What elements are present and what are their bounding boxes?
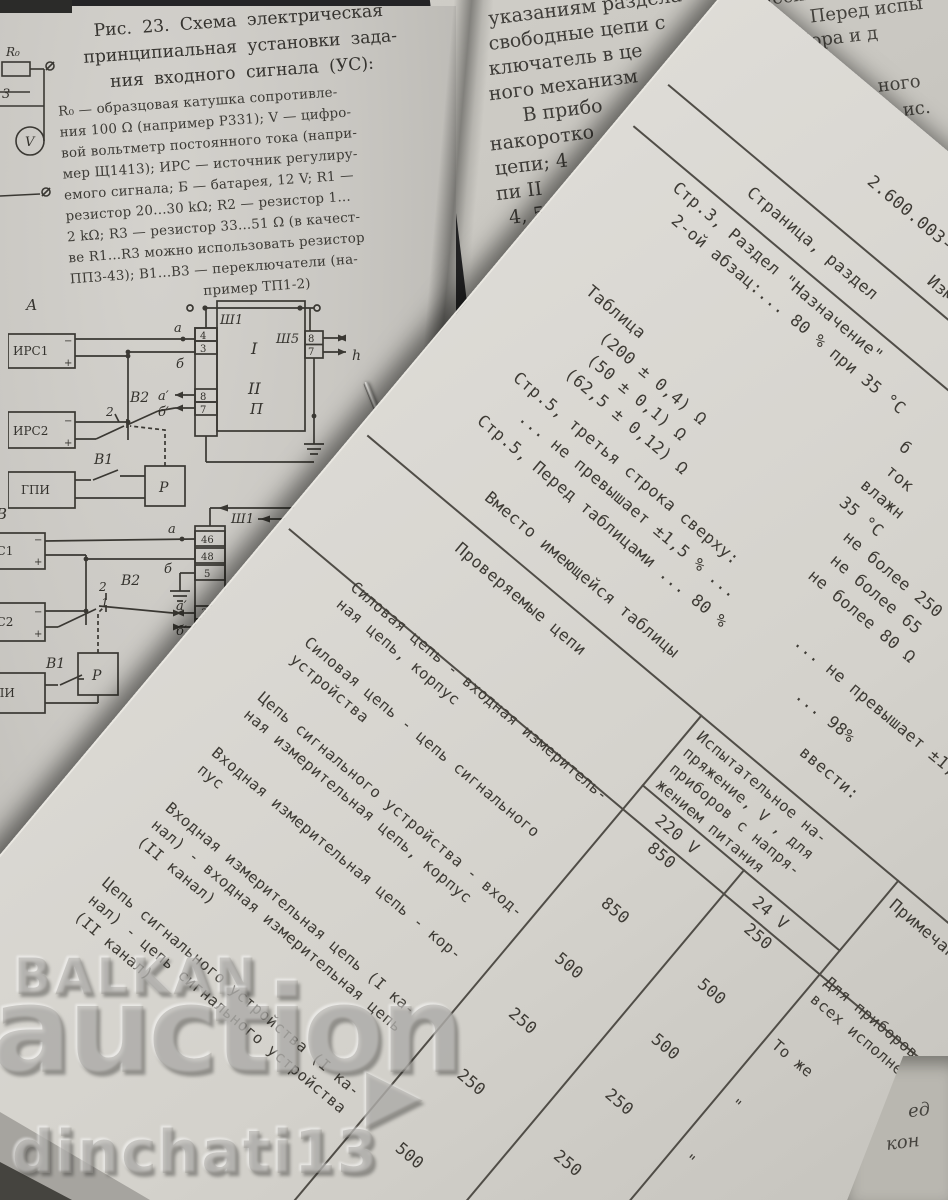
r0-label: R₀ <box>5 45 20 59</box>
gpi-block-label: ГПИ <box>21 483 50 497</box>
sh5-pin-7: 7 <box>308 347 314 358</box>
plus-mark: + <box>34 629 42 640</box>
minus-mark: − <box>64 416 72 427</box>
pin-48: 48 <box>201 552 214 563</box>
irs2-block-label: ИРС2 <box>13 424 48 438</box>
contact-1-label: 1 <box>101 596 109 610</box>
pin-4: 4 <box>200 331 206 342</box>
figure-caption: Рис. 23. Схема электрическая принципиаль… <box>52 0 443 312</box>
sh1-connector-label: Ш1 <box>219 313 243 328</box>
background-strip <box>0 0 72 13</box>
table-cell-24v: 500 <box>694 974 730 1008</box>
table-row-label: Силовая цепь - входная измеритель- <box>347 578 612 804</box>
plus-mark: + <box>64 438 72 449</box>
wire-a-label: a <box>168 522 176 537</box>
wire-a-label: a <box>174 321 182 336</box>
pin-46: 46 <box>201 535 214 546</box>
entry-line: ввести: <box>796 743 864 804</box>
section-2-label: II <box>247 379 261 398</box>
watermark-dinchati13: dinchati13 <box>12 1118 380 1188</box>
entry-line: 2-ой абзац:... 80 % при 35 °С <box>668 211 910 418</box>
minus-mark: − <box>34 535 42 546</box>
table-cell-220v: 850 <box>597 893 633 927</box>
pin-5: 5 <box>204 569 210 580</box>
table-cell-24v: 250 <box>550 1146 586 1180</box>
circuit-a-label: А <box>25 296 37 314</box>
irs1-block-label: ИРС1 <box>13 344 48 358</box>
wire-a1-label: a′ <box>176 599 187 614</box>
pin-3: 3 <box>200 344 206 355</box>
text-fragment: ед <box>907 1099 931 1123</box>
wire-b-label: б <box>164 562 172 577</box>
sh5-pin-8: 8 <box>308 334 314 345</box>
plus-mark: + <box>64 358 72 369</box>
table-header-note: Примечание <box>886 895 948 976</box>
contact-2-label: 2 <box>105 405 114 419</box>
section-1-label: I <box>250 339 258 358</box>
text-fragment: ного <box>876 71 921 97</box>
table-cell-note-ditto: " <box>680 1150 699 1170</box>
photo-of-technical-documents: указаниям раздела свободные цепи с ключа… <box>0 0 948 1200</box>
table-cell-220v: 500 <box>392 1138 428 1172</box>
gpi-block-label: ГПИ <box>0 686 15 700</box>
doc-number: 2.600.003- <box>863 172 948 256</box>
entry-line: Таблица <box>582 281 650 342</box>
r-block-label: Р <box>91 668 102 684</box>
table-cell-220v: 500 <box>551 949 587 983</box>
switch-b2-label: В2 <box>129 390 149 406</box>
wire-b1-label: б′ <box>158 405 169 420</box>
minus-mark: − <box>64 336 72 347</box>
circuit-b-label: В <box>0 505 7 523</box>
text-line: накоротко <box>489 121 596 156</box>
table-cell-220v: 250 <box>505 1004 541 1038</box>
text-line: цепи; 4 <box>494 149 569 180</box>
switch-b2-label: В2 <box>120 573 140 589</box>
wire-a1-label: a′ <box>158 389 169 404</box>
sh5-connector-label: Ш5 <box>275 332 299 347</box>
table-cell-note-ditto: " <box>726 1095 745 1115</box>
r3-label: 3 <box>2 87 10 102</box>
sh1-connector-label: Ш1 <box>230 512 254 527</box>
table-cell-24v: 500 <box>648 1030 684 1064</box>
plus-mark: + <box>34 557 42 568</box>
voltmeter-label: V <box>25 135 36 150</box>
pin-7: 7 <box>200 405 206 416</box>
wire-h-label: h <box>352 348 361 364</box>
irs2-block-label: ИРС2 <box>0 615 13 629</box>
entry-fragment: б <box>895 437 915 458</box>
text-fragment: кон <box>885 1130 921 1155</box>
switch-b1-label: В1 <box>45 656 65 672</box>
text-line: пи II <box>495 178 544 205</box>
entry-line: ... не превышает ±1,5 % ... <box>515 408 741 602</box>
table-cell-note: То же <box>768 1036 817 1081</box>
pin-8: 8 <box>200 392 206 403</box>
section-p-label: П <box>249 400 264 418</box>
table-cell-24v: 250 <box>601 1085 637 1119</box>
contact-2-label: 2 <box>98 580 107 594</box>
minus-mark: − <box>34 607 42 618</box>
wire-b-label: б <box>176 357 184 372</box>
switch-b1-label: В1 <box>93 452 113 468</box>
r-block-label: Р <box>158 480 169 496</box>
irs1-block-label: ИРС1 <box>0 544 13 558</box>
